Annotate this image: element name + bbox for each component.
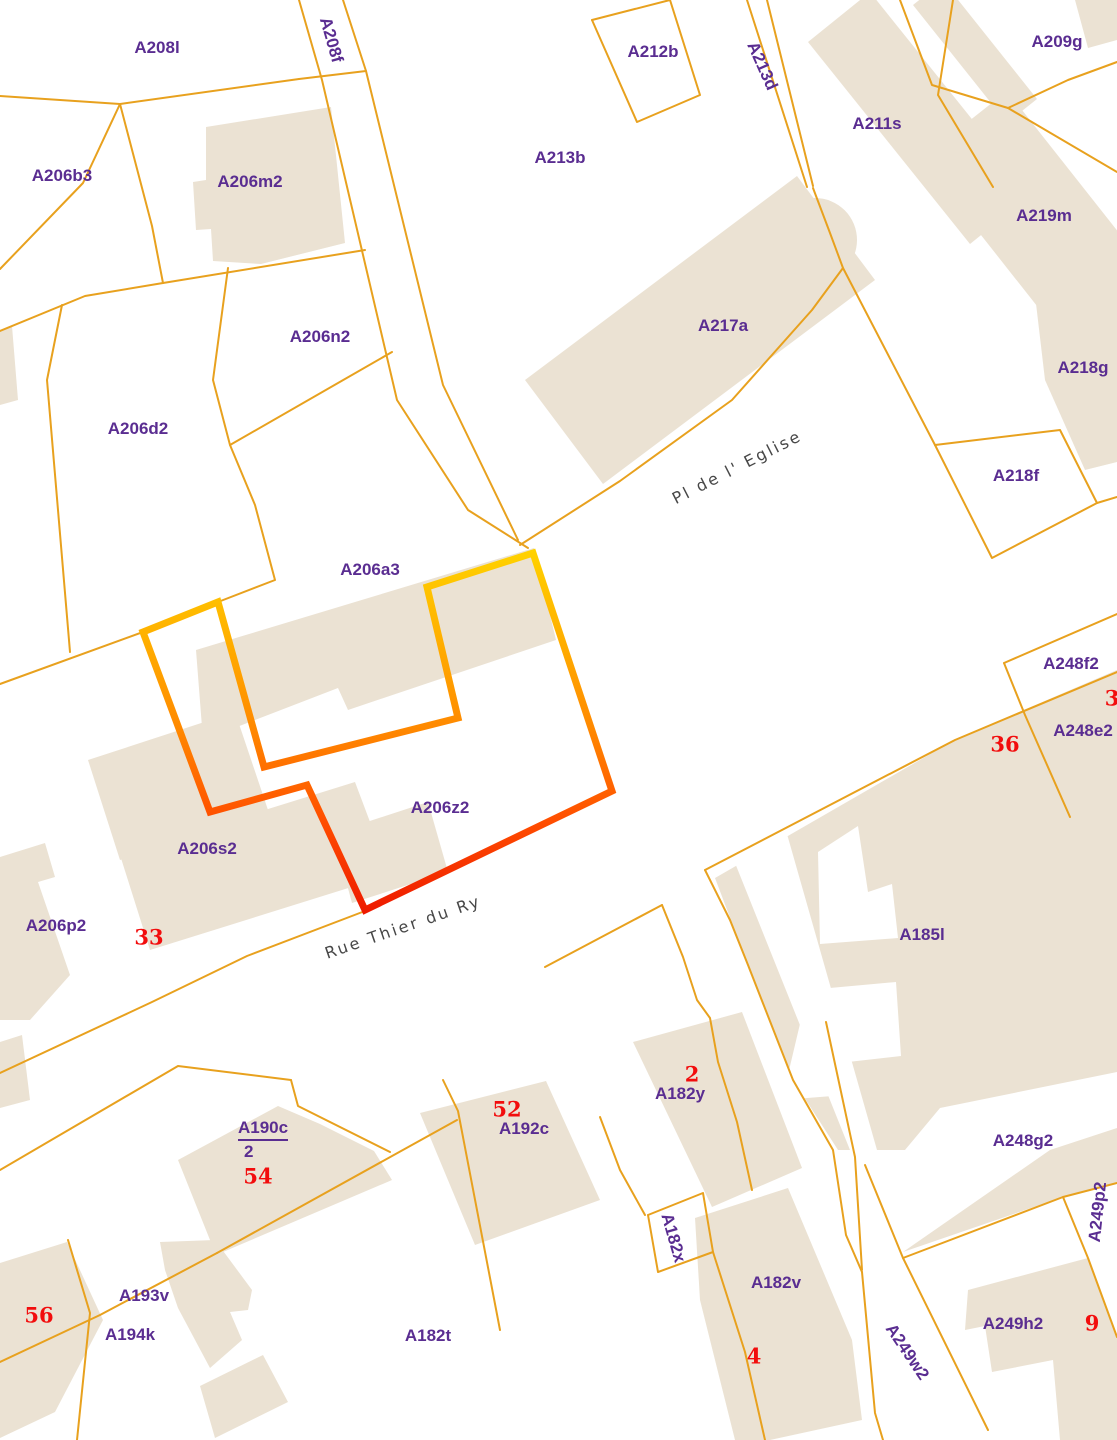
parcel-label: A185l (899, 925, 944, 945)
parcel-label: A213d (742, 39, 781, 94)
house-number: 36 (990, 732, 1019, 757)
house-number: 2 (685, 1062, 700, 1087)
parcel-label: A206m2 (217, 172, 282, 192)
parcel-label: A212b (627, 42, 678, 62)
street-name-label: Pl de l' Eglise (669, 426, 805, 508)
parcel-label: A194k (105, 1325, 155, 1345)
map-label-layer: A208lA208fA206b3A206m2A206n2A206d2A206a3… (0, 0, 1117, 1440)
house-number: 56 (24, 1303, 53, 1328)
parcel-label: A217a (698, 316, 748, 336)
parcel-label: A208l (134, 38, 179, 58)
parcel-label: A206z2 (411, 798, 470, 818)
house-number: 33 (134, 925, 163, 950)
street-name-label: Rue Thier du Ry (322, 891, 483, 962)
parcel-label: A248g2 (993, 1131, 1053, 1151)
parcel-label: A206s2 (177, 839, 237, 859)
map-canvas[interactable]: A208lA208fA206b3A206m2A206n2A206d2A206a3… (0, 0, 1117, 1440)
parcel-label: A182t (405, 1326, 451, 1346)
parcel-label: A249p2 (1085, 1181, 1111, 1243)
parcel-label: A206p2 (26, 916, 86, 936)
house-number: 54 (243, 1164, 272, 1189)
parcel-label: A192c (499, 1119, 549, 1139)
house-number: 4 (747, 1344, 762, 1369)
parcel-label: A182v (751, 1273, 801, 1293)
parcel-label: A249w2 (881, 1320, 933, 1384)
parcel-label: A206d2 (108, 419, 168, 439)
fraction-numerator: A190c (238, 1118, 288, 1141)
parcel-label: A182x (656, 1211, 689, 1265)
parcel-label: A218f (993, 466, 1039, 486)
parcel-label: A206n2 (290, 327, 350, 347)
parcel-label: A206a3 (340, 560, 400, 580)
fraction-denominator: 2 (244, 1142, 288, 1162)
parcel-label: A211s (852, 114, 901, 134)
parcel-label: A218g (1057, 358, 1108, 378)
house-number: 52 (492, 1097, 521, 1122)
parcel-label: A213b (534, 148, 585, 168)
parcel-label: A193v (119, 1286, 169, 1306)
parcel-label: A208f (315, 15, 347, 65)
parcel-label: A219m (1016, 206, 1072, 226)
parcel-label-fraction: A190c2 (238, 1118, 288, 1162)
parcel-label: A248f2 (1043, 654, 1099, 674)
parcel-label: A182y (655, 1084, 705, 1104)
parcel-label: A249h2 (983, 1314, 1043, 1334)
parcel-label: A248e2 (1053, 721, 1113, 741)
parcel-label: A206b3 (32, 166, 92, 186)
parcel-label: A209g (1031, 32, 1082, 52)
house-number: 3 (1105, 686, 1117, 711)
house-number: 9 (1085, 1311, 1100, 1336)
